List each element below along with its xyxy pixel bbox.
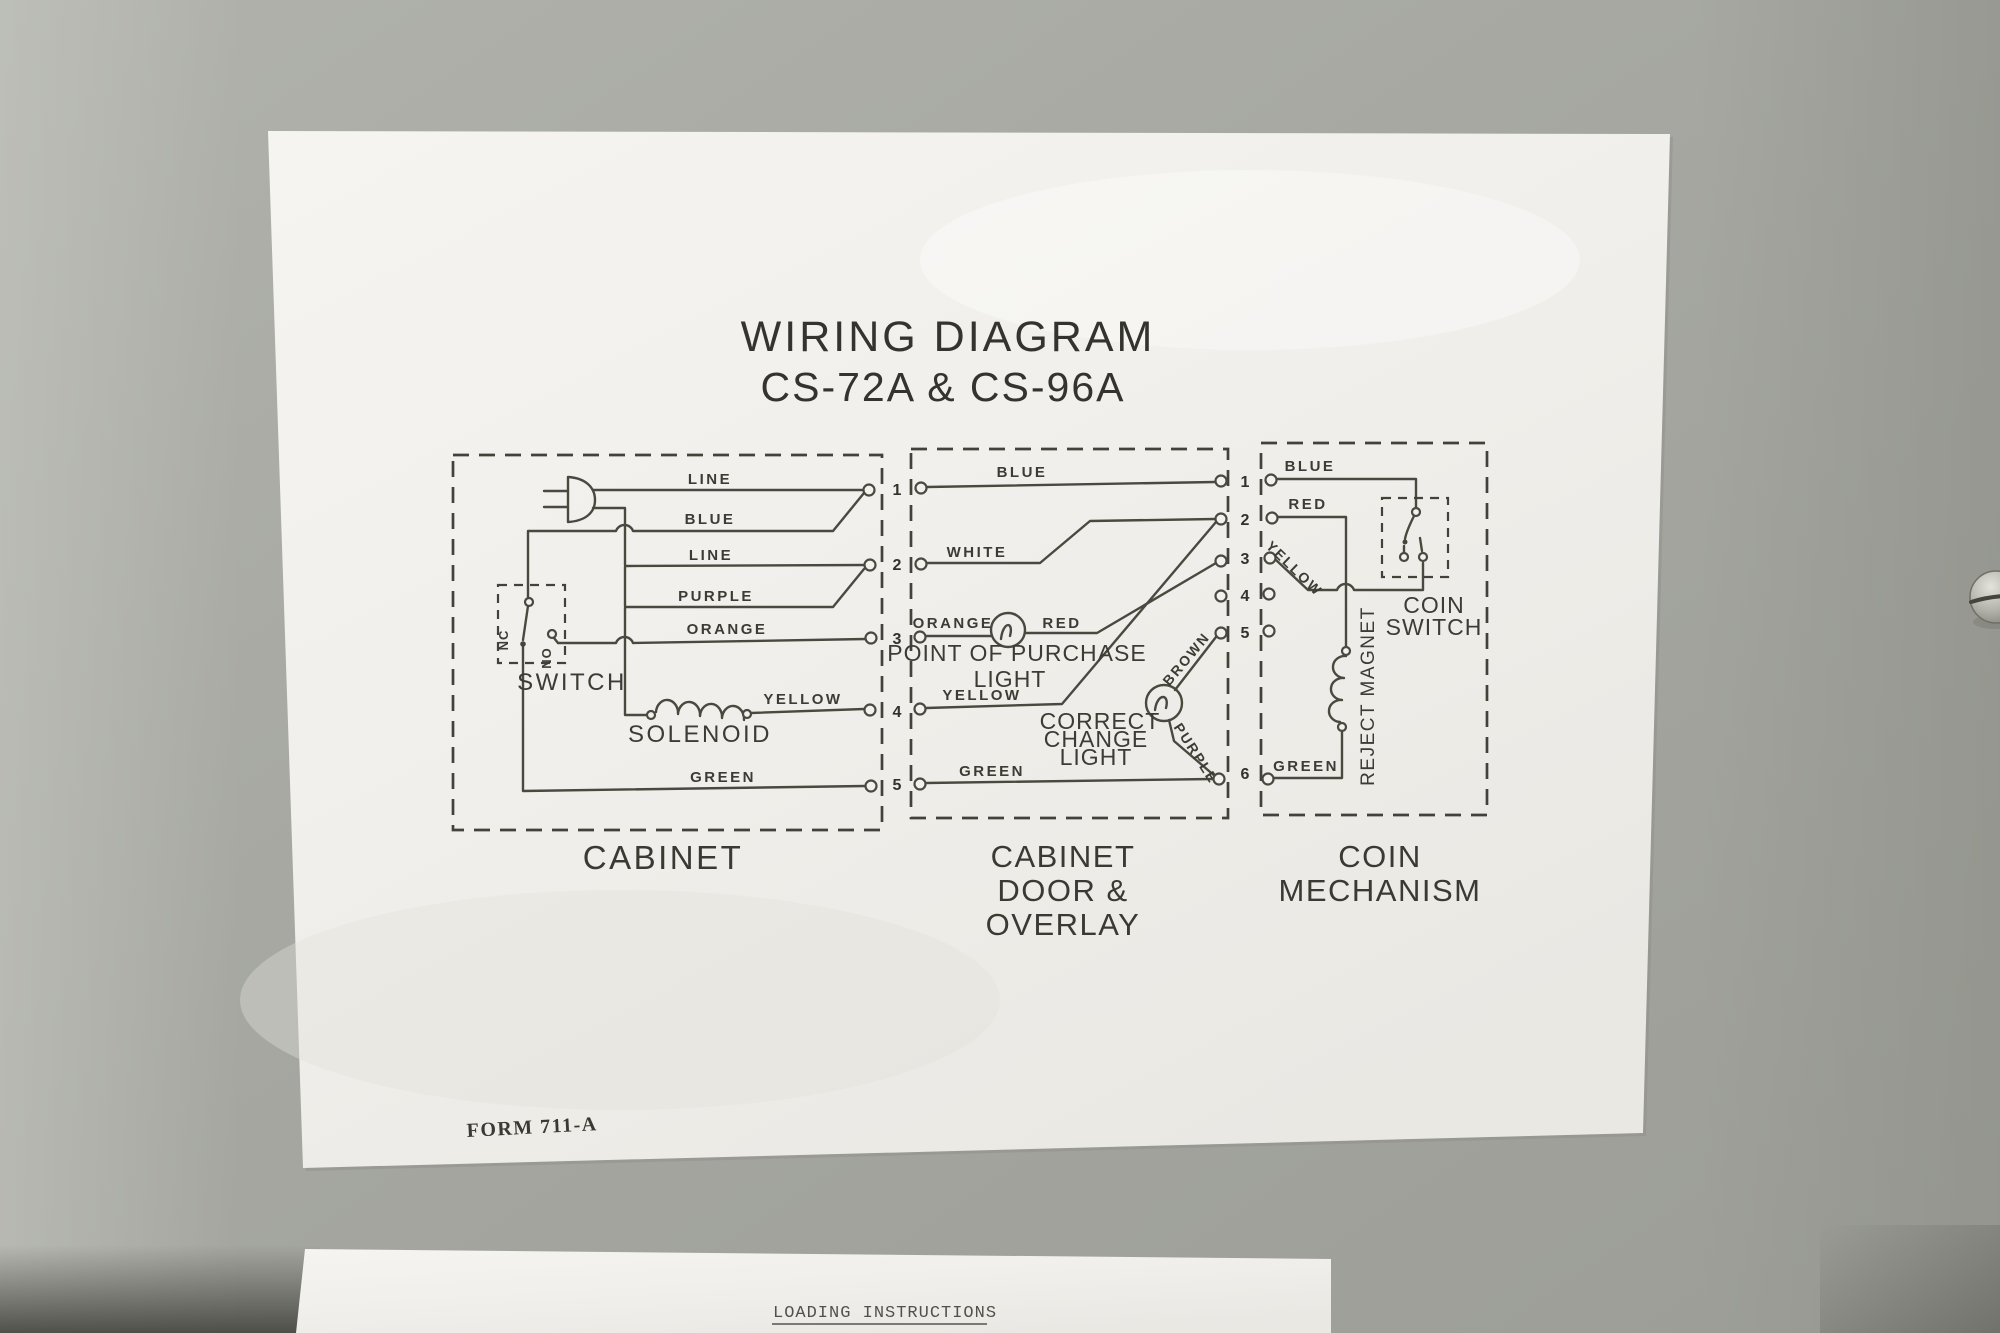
terminal — [866, 633, 877, 644]
wall-right-shading — [1700, 0, 2000, 1333]
terminal — [915, 779, 926, 790]
wall-light-streak — [0, 0, 240, 1333]
photo-of-wiring-diagram-label: WIRING DIAGRAM CS-72A & CS-96A LINE BLUE… — [0, 0, 2000, 1333]
terminal — [1264, 626, 1275, 637]
coin-switch-contact-top — [1412, 508, 1420, 516]
terminal-number: 1 — [893, 482, 902, 499]
terminal — [866, 781, 877, 792]
coin-switch-contact-left — [1400, 553, 1408, 561]
label-nc: NC — [496, 630, 511, 651]
label-white: WHITE — [947, 544, 1008, 561]
terminal — [1216, 591, 1227, 602]
terminal — [864, 485, 875, 496]
terminal-number: 4 — [1241, 588, 1250, 605]
caption-line: DOOR & — [997, 873, 1128, 908]
label-red: RED — [1288, 496, 1327, 513]
terminal-number: 2 — [1241, 512, 1250, 529]
terminal-number: 1 — [1241, 474, 1250, 491]
label-blue: BLUE — [1285, 458, 1336, 475]
pop-light-label-1: POINT OF PURCHASE — [887, 640, 1146, 666]
terminal-number: 2 — [893, 557, 902, 574]
label-orange: ORANGE — [913, 615, 994, 632]
label-line-mid: LINE — [689, 547, 733, 564]
label-reject-magnet: REJECT MAGNET — [1358, 606, 1379, 786]
terminal — [865, 560, 876, 571]
caption-line: MECHANISM — [1279, 873, 1482, 908]
cc-light-label-3: LIGHT — [1060, 744, 1133, 770]
terminal — [865, 705, 876, 716]
terminal-number: 5 — [893, 777, 902, 794]
label-red: RED — [1042, 615, 1081, 632]
terminal — [1214, 774, 1225, 785]
coin-switch-contact-right — [1419, 553, 1427, 561]
pop-light-label-2: LIGHT — [974, 666, 1047, 692]
terminal — [1266, 475, 1277, 486]
label-yellow: YELLOW — [763, 691, 842, 708]
caption-line: OVERLAY — [986, 907, 1141, 942]
title-line-1: WIRING DIAGRAM — [741, 313, 1156, 361]
switch-contact-no — [548, 630, 556, 638]
terminal — [1264, 589, 1275, 600]
label-purple: PURPLE — [678, 588, 754, 605]
terminal — [1267, 513, 1278, 524]
label-green: GREEN — [690, 769, 756, 786]
wall-shadow-bottom-left — [0, 1245, 320, 1333]
caption-cabinet: CABINET — [583, 839, 744, 876]
label-green: GREEN — [1273, 758, 1339, 775]
terminal — [915, 704, 926, 715]
caption-line: COIN — [1338, 839, 1422, 874]
wall-shadow-bottom-right — [1820, 1225, 2000, 1333]
label-blue: BLUE — [997, 464, 1048, 481]
coin-switch-blade-tip — [1403, 540, 1408, 545]
caption-cabinet-door: CABINET DOOR & OVERLAY — [986, 839, 1141, 942]
terminal — [916, 559, 927, 570]
terminal — [916, 483, 927, 494]
solenoid-terminal-left — [647, 711, 655, 719]
loading-instructions-title: LOADING INSTRUCTIONS — [773, 1304, 997, 1323]
terminal — [1216, 628, 1227, 639]
terminal — [1263, 774, 1274, 785]
label-orange: ORANGE — [687, 621, 768, 638]
label-coin-switch-2: SWITCH — [1386, 614, 1483, 640]
solenoid-terminal-right — [743, 710, 751, 718]
title-line-2: CS-72A & CS-96A — [761, 364, 1126, 410]
loading-instructions-label: LOADING INSTRUCTIONS — [296, 1249, 1331, 1333]
terminal-number: 4 — [893, 704, 902, 721]
terminal-number: 5 — [1241, 625, 1250, 642]
terminal — [1216, 514, 1227, 525]
scene: WIRING DIAGRAM CS-72A & CS-96A LINE BLUE… — [0, 0, 2000, 1333]
terminal — [1216, 556, 1227, 567]
switch-contact-nc — [520, 641, 526, 647]
terminal-number: 3 — [1241, 551, 1250, 568]
label-switch: SWITCH — [517, 669, 627, 696]
label-blue: BLUE — [685, 511, 736, 528]
caption-line: CABINET — [991, 839, 1136, 874]
label-solenoid: SOLENOID — [628, 721, 772, 748]
label-no: NO — [539, 647, 554, 669]
terminal-number: 6 — [1241, 766, 1250, 783]
switch-contact-top — [525, 598, 533, 606]
label-green: GREEN — [959, 763, 1025, 780]
paper-wrinkle-shade — [240, 890, 1000, 1110]
label-line-top: LINE — [688, 471, 732, 488]
magnet-terminal-top — [1342, 647, 1350, 655]
terminal — [1216, 476, 1227, 487]
